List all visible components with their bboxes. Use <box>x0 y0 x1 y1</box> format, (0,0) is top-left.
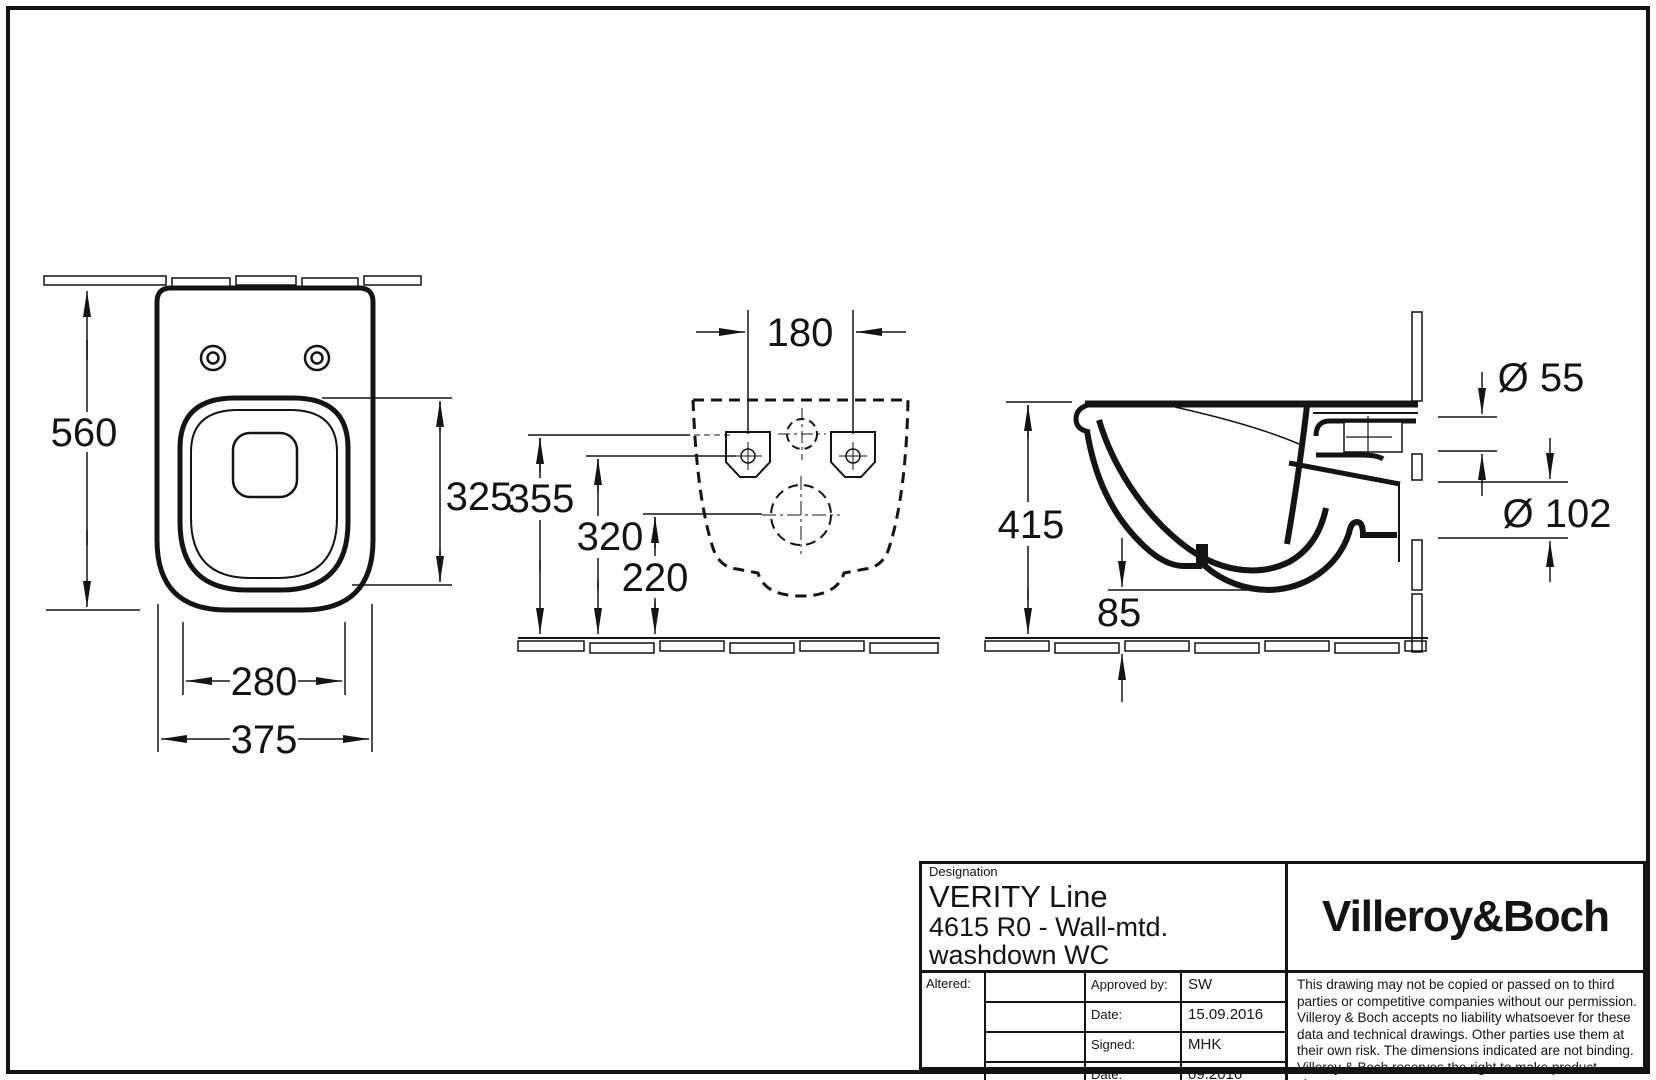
approved-date-value: 15.09.2016 <box>1182 1003 1285 1033</box>
dim-415-label: 415 <box>998 503 1065 547</box>
dim-85-label: 85 <box>1097 591 1142 635</box>
dim-325-label: 325 <box>446 475 513 519</box>
wall-hatch <box>1412 312 1422 652</box>
series-name: VERITY Line <box>929 880 1278 913</box>
model-name: 4615 R0 - Wall-mtd. washdown WC <box>929 913 1278 969</box>
dim-375-label: 375 <box>231 718 298 762</box>
title-block-bottom-row: Altered: Approved by: SW Date: 15.09.201… <box>922 973 1643 1080</box>
signed-value: MHK <box>1182 1033 1285 1063</box>
brand-logo: Villeroy&Boch <box>1322 892 1609 942</box>
rear-view: 180 355 320 <box>508 310 940 653</box>
outlet-circle <box>762 476 840 554</box>
dim-280-label: 280 <box>231 660 298 704</box>
side-view: 415 85 Ø 55 Ø 102 <box>985 312 1611 702</box>
altered-label: Altered: <box>922 973 986 1080</box>
table-empty-cell <box>986 1003 1086 1033</box>
wall-hatch <box>44 276 421 287</box>
signed-label: Signed: <box>1086 1033 1182 1063</box>
designation-cell: Designation VERITY Line 4615 R0 - Wall-m… <box>922 864 1288 970</box>
floor-hatch <box>985 641 1426 653</box>
disclaimer-text: This drawing may not be copied or passed… <box>1288 973 1643 1080</box>
table-empty-cell <box>986 1033 1086 1063</box>
title-block-top-row: Designation VERITY Line 4615 R0 - Wall-m… <box>922 864 1643 973</box>
brand-cell: Villeroy&Boch <box>1288 864 1643 970</box>
top-view: 560 325 280 <box>44 276 512 762</box>
signed-date-value: 09.2016 <box>1182 1063 1285 1080</box>
signed-date-label: Date: <box>1086 1063 1182 1080</box>
approved-by-value: SW <box>1182 973 1285 1003</box>
dim-180-label: 180 <box>767 311 834 355</box>
approved-date-label: Date: <box>1086 1003 1182 1033</box>
toilet-section-profile <box>1076 404 1418 590</box>
dim-355-label: 355 <box>508 477 575 521</box>
dim-dia55 <box>1438 372 1497 496</box>
dim-560-label: 560 <box>51 411 118 455</box>
table-empty-cell <box>986 973 1086 1003</box>
title-block: Designation VERITY Line 4615 R0 - Wall-m… <box>919 861 1646 1070</box>
approved-by-label: Approved by: <box>1086 973 1182 1003</box>
designation-label: Designation <box>929 865 1278 879</box>
toilet-rear-silhouette <box>693 400 908 596</box>
dim-220-label: 220 <box>622 556 689 600</box>
table-empty-cell <box>986 1063 1086 1080</box>
dim-dia55-label: Ø 55 <box>1498 356 1585 400</box>
floor-hatch <box>518 641 938 653</box>
dim-320-label: 320 <box>577 515 644 559</box>
drawing-sheet: 560 325 280 <box>0 0 1656 1080</box>
water-supply-circle <box>778 408 826 460</box>
dim-dia102-label: Ø 102 <box>1503 492 1612 536</box>
approval-table: Altered: Approved by: SW Date: 15.09.201… <box>922 973 1288 1080</box>
